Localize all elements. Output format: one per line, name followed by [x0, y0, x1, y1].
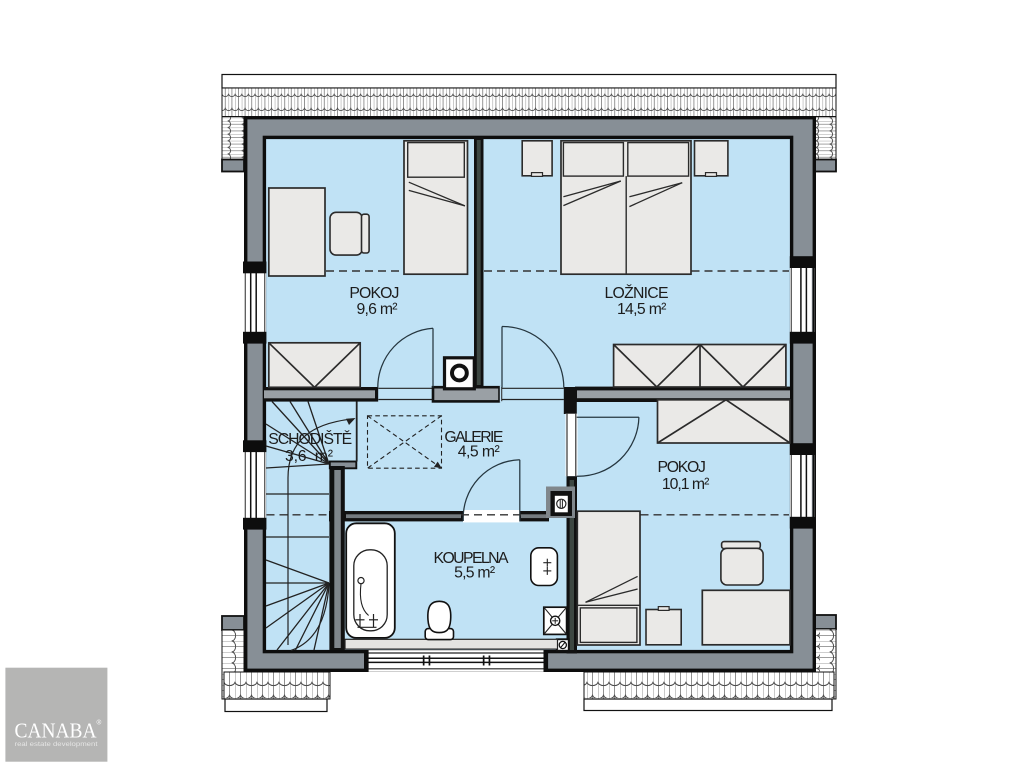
svg-text:®: ®: [97, 719, 102, 727]
svg-text:LOŽNICE: LOŽNICE: [605, 283, 669, 302]
svg-text:POKOJ: POKOJ: [349, 285, 399, 302]
svg-text:9,6 m²: 9,6 m²: [357, 301, 398, 318]
svg-text:4,5 m²: 4,5 m²: [458, 443, 500, 460]
svg-text:real estate development: real estate development: [15, 741, 98, 748]
svg-text:POKOJ: POKOJ: [657, 459, 706, 476]
svg-text:3,6 m²: 3,6 m²: [285, 448, 333, 465]
svg-text:CANABA: CANABA: [15, 719, 98, 743]
svg-text:14,5 m²: 14,5 m²: [617, 301, 667, 318]
svg-text:SCHODIŠTĚ: SCHODIŠTĚ: [268, 429, 352, 448]
svg-text:10,1 m²: 10,1 m²: [662, 476, 710, 493]
svg-text:5,5 m²: 5,5 m²: [454, 564, 495, 581]
